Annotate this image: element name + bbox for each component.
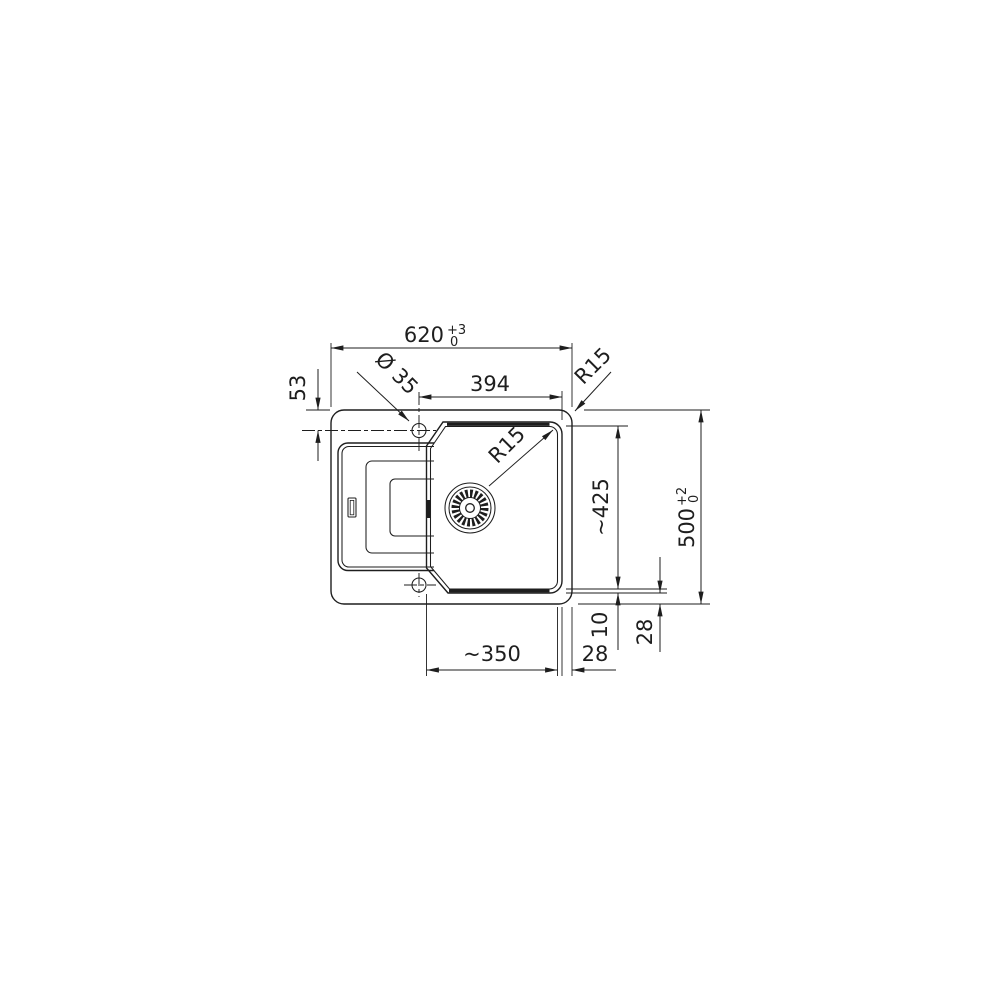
drainboard-right-slot <box>427 500 430 518</box>
dim-edge-offset-vertical: 28 <box>633 557 660 652</box>
dim-bowl-width-top: 394 <box>419 372 562 397</box>
label-overall-height: 500 <box>675 508 699 548</box>
label-rim-width: 10 <box>588 612 612 639</box>
label-edge-offset-horizontal: 28 <box>582 642 609 666</box>
label-overall-height-tol-minus: 0 <box>687 495 702 503</box>
label-edge-offset-vertical: 28 <box>633 619 657 646</box>
faucet-hole-mark-top <box>302 392 436 451</box>
dim-edge-offset-horizontal: 28 <box>572 642 616 670</box>
faucet-hole-mark-bottom <box>404 573 436 597</box>
drawing-canvas: 620 +3 0 394 53 Ø 35 R15 R15 <box>0 0 1000 1000</box>
label-corner-radius-bowl: R15 <box>484 422 530 468</box>
label-bowl-width-top: 394 <box>470 372 510 396</box>
dim-overall-width: 620 +3 0 <box>331 323 572 350</box>
dim-faucet-offset: 53 <box>286 369 318 461</box>
label-bowl-depth: ~425 <box>589 478 613 536</box>
label-corner-radius-outer: R15 <box>570 343 616 389</box>
dim-bowl-width-bottom: ~350 <box>427 642 558 670</box>
drainboard <box>338 443 434 571</box>
dim-corner-radius-bowl: R15 <box>484 422 553 486</box>
label-faucet-offset: 53 <box>286 375 310 402</box>
drainboard-slot <box>348 498 356 517</box>
label-bowl-width-bottom: ~350 <box>463 642 521 666</box>
label-overall-width: 620 <box>404 323 444 347</box>
sink-technical-drawing: 620 +3 0 394 53 Ø 35 R15 R15 <box>0 0 1000 1000</box>
label-overall-width-tol-minus: 0 <box>450 335 458 350</box>
sink-outline <box>331 410 572 604</box>
dim-corner-radius-outer: R15 <box>570 343 616 411</box>
dim-bowl-depth: ~425 <box>589 426 618 589</box>
dim-overall-height: 500 +2 0 <box>675 410 702 604</box>
label-faucet-hole-diameter: Ø 35 <box>371 347 423 399</box>
drain-strainer-icon <box>445 483 495 533</box>
